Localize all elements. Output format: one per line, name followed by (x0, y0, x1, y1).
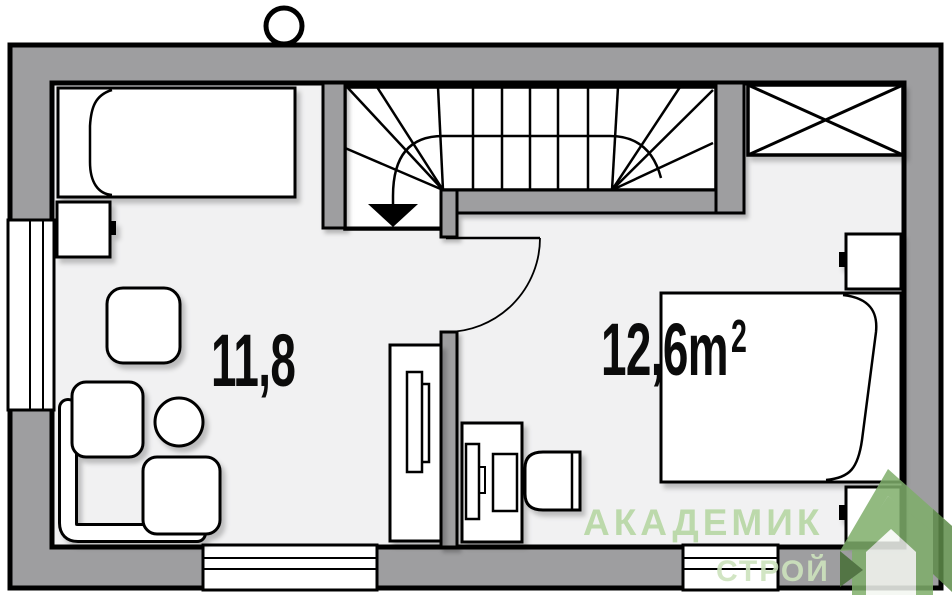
wardrobe (748, 85, 903, 155)
nightstand-left (57, 202, 116, 257)
stair-left-wall (323, 83, 345, 228)
desk-chair (525, 452, 580, 510)
monitor (466, 444, 479, 519)
watermark-brand-line2: СТРОЙ (716, 554, 830, 588)
tv-screen (407, 372, 422, 472)
nightstand-knob (839, 505, 846, 520)
room-bedroom-area-superscript: 2 (731, 311, 747, 363)
tv-stand (390, 345, 441, 541)
room-bedroom-area-label: 12,6m (601, 309, 728, 392)
sofa-cushion-right (143, 457, 220, 534)
floor-plan-canvas: 11,8 12,6m 2 АКАДЕМИК СТРОЙ (0, 0, 952, 595)
room-living-area-label: 11,8 (211, 320, 295, 403)
keyboard (493, 454, 517, 511)
coffee-table (107, 288, 180, 363)
nightstand-knob (109, 221, 116, 235)
side-table-round (155, 398, 203, 446)
window-bottom-left (203, 545, 377, 590)
partition-wall-lower (441, 332, 457, 547)
watermark-brand-line1: АКАДЕМИК (583, 502, 823, 543)
desk (462, 423, 522, 542)
window-left (8, 220, 54, 410)
stair-right-wall (716, 83, 744, 213)
nightstand-knob (839, 252, 846, 267)
stair-bottom-wall (443, 190, 716, 213)
single-bed (58, 88, 295, 197)
sofa-cushion-top (72, 382, 143, 457)
nightstand-top-right (839, 234, 901, 289)
partition-wall-upper (441, 190, 457, 237)
chimney-circle (266, 8, 302, 44)
